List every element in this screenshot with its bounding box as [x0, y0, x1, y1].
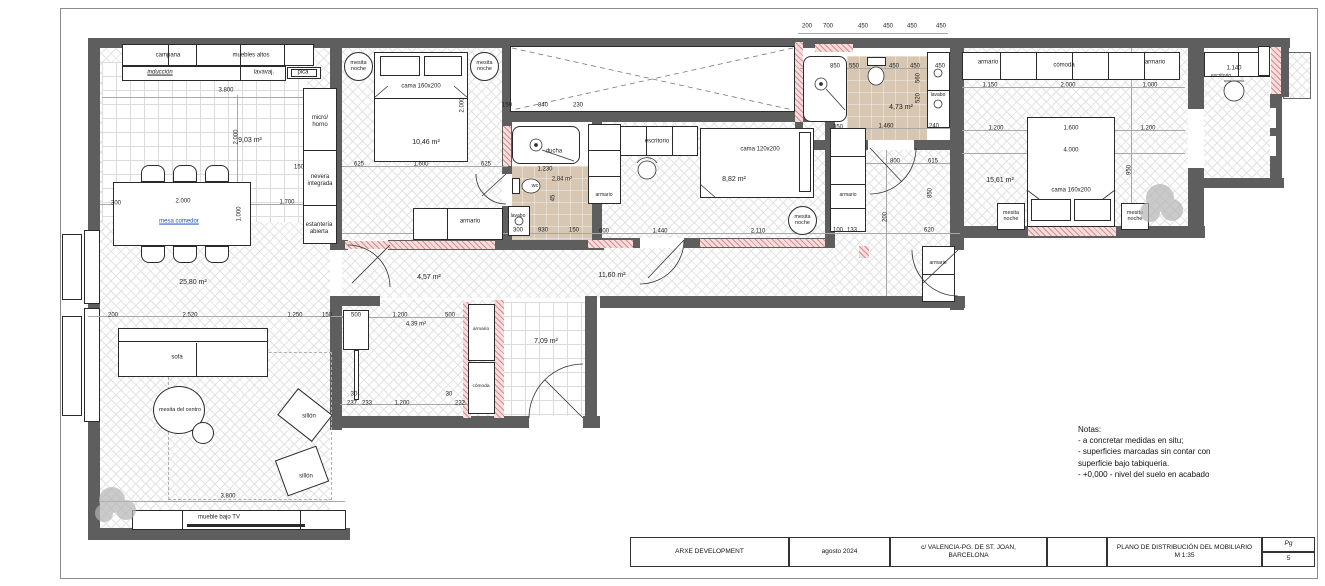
furniture-label: armario: [473, 327, 489, 333]
room-area-label: 11,60 m²: [598, 272, 625, 280]
titleblock-empty-cell: [1047, 537, 1107, 567]
dim-label: 1.200: [1140, 126, 1155, 133]
drawing-scale: M 1:35: [1175, 552, 1195, 560]
dim-label: 450: [936, 24, 946, 31]
titleblock-developer: ARXE DEVELOPMENT: [630, 537, 789, 567]
dim-label: 2.000: [460, 97, 467, 112]
dim-label: 150: [294, 165, 304, 172]
furniture-label: armario: [1145, 60, 1165, 67]
dim-label: 1.600: [413, 162, 428, 169]
room-area-label: 8,82 m²: [722, 176, 746, 184]
dim-label: 30: [351, 392, 358, 399]
titleblock-date: agosto 2024: [789, 537, 890, 567]
dim-label: 850: [928, 188, 935, 198]
dim-label: 1.000: [1142, 83, 1157, 90]
dim-label: 1.230: [537, 167, 552, 174]
dim-label: 45: [551, 195, 558, 202]
dim-label: 1.000: [237, 206, 244, 221]
dim-label: 3.800: [220, 494, 235, 501]
dim-label: 1.250: [287, 313, 302, 320]
dim-label: 100: [833, 228, 843, 235]
fixture-label: lavabo: [511, 214, 526, 220]
dim-label: 1.200: [394, 401, 409, 408]
dim-label: 1.150: [982, 83, 997, 90]
furniture-label: campana: [156, 53, 181, 60]
dim-label: 2.000: [175, 199, 190, 206]
titleblock-drawing-title: PLANO DE DISTRIBUCIÓN DEL MOBILIARIO M 1…: [1107, 537, 1262, 567]
notes-block: Notas: - a concretar medidas en situ; - …: [1078, 424, 1298, 480]
furniture-label: armario: [930, 261, 947, 267]
dim-label: 1.200: [392, 313, 407, 320]
dim-label: 1.460: [878, 124, 893, 131]
dim-label: 620: [924, 228, 934, 235]
dim-label: 133: [847, 228, 857, 235]
dim-label: 600: [599, 229, 609, 236]
furniture-label: mesita del centro: [159, 407, 201, 413]
floor-plan-sheet: mesita noche mesita noche mesita noche m…: [0, 0, 1325, 586]
furniture-label: mueble bajo TV: [198, 515, 240, 522]
furniture-label: armario: [978, 60, 998, 67]
dim-label: 200: [883, 212, 890, 222]
furniture-label: estantería abierta: [306, 222, 333, 236]
dim-label: 520: [916, 93, 923, 103]
room-area-label: 25,80 m²: [179, 279, 207, 287]
dim-label: 930: [538, 228, 548, 235]
room-area-label: 7,09 m²: [534, 338, 558, 346]
furniture-label: sillón: [299, 474, 313, 481]
furniture-label: inducción: [147, 70, 172, 77]
furniture-label: cómoda: [472, 384, 489, 390]
furniture-label: armario: [596, 193, 613, 199]
furniture-label: mesa comedor: [159, 219, 199, 226]
dim-label: 1.600: [1063, 126, 1078, 133]
dim-label: 233: [362, 401, 372, 408]
dim-label: 350: [833, 125, 843, 132]
room-area-label: 2,84 m²: [552, 177, 572, 184]
furniture-label: cama 160x200: [401, 84, 440, 91]
dim-label: 1.440: [652, 229, 667, 236]
furniture-label: micro/ horno: [312, 115, 328, 129]
furniture-label: cama 120x200: [740, 147, 779, 154]
dim-label: 450: [889, 64, 899, 71]
notes-line: - a concretar medidas en situ;: [1078, 435, 1298, 446]
dim-label: 150: [569, 228, 579, 235]
room-area-label: 4,57 m²: [417, 274, 441, 282]
dim-label: 300: [111, 201, 121, 208]
plant-icon: [95, 184, 1183, 522]
notes-line: superficie bajo tabiqueria.: [1078, 458, 1298, 469]
dim-label: 237: [347, 401, 357, 408]
dim-label: 200: [108, 313, 118, 320]
dim-label: 150: [502, 103, 512, 110]
dim-label: 1.140: [1226, 66, 1241, 73]
dim-label: 500: [445, 313, 455, 320]
titleblock-page-label: Pg: [1262, 537, 1315, 552]
furniture-label: sofa: [171, 355, 182, 362]
dim-label: 30: [446, 392, 453, 399]
dim-label: 450: [907, 24, 917, 31]
dim-label: 625: [354, 162, 364, 169]
furniture-label: nevera integrada: [307, 174, 332, 188]
dim-label: 850: [830, 64, 840, 71]
notes-line: - +0,000 - nivel del suelo en acabado: [1078, 469, 1298, 480]
furniture-label: armario: [460, 219, 480, 226]
dim-label: 700: [823, 24, 833, 31]
fixture-label: wc: [532, 183, 539, 189]
room-area-label: 4,73 m²: [889, 104, 913, 112]
titleblock-address: c/ VALENCIA-PG. DE ST. JOAN, BARCELONA: [890, 537, 1047, 567]
dim-label: 240: [929, 124, 939, 131]
dim-label: 625: [481, 162, 491, 169]
furniture-label: armario: [840, 193, 857, 199]
room-area-label: 9,03 m²: [238, 137, 262, 145]
furniture-label: escritorio: [1211, 74, 1231, 80]
room-area-label: 10,46 m²: [412, 139, 440, 147]
dim-label: 150: [322, 313, 332, 320]
dim-label: 800: [890, 159, 900, 166]
dim-label: 200: [802, 24, 812, 31]
dim-label: 2.520: [182, 313, 197, 320]
plan-annotations: [0, 0, 1325, 586]
room-area-label: 15,61 m²: [986, 177, 1014, 185]
dim-label: 450: [883, 24, 893, 31]
furniture-label: lavavaj.: [254, 70, 274, 77]
titleblock-page-number: 5: [1262, 552, 1315, 567]
dim-label: 450: [910, 64, 920, 71]
dim-label: 2.000: [1060, 83, 1075, 90]
room-area-label: 4,39 m²: [406, 322, 426, 329]
dim-label: 1.700: [279, 200, 294, 207]
dim-label: 615: [928, 159, 938, 166]
dim-label: 950: [1127, 165, 1134, 175]
dim-label: 560: [916, 73, 923, 83]
fixture-label: ducha: [546, 149, 562, 156]
furniture-label: sillón: [302, 414, 316, 421]
dim-label: 1.200: [988, 126, 1003, 133]
dim-label: 230: [573, 103, 583, 110]
dim-label: 2.000: [234, 129, 241, 144]
dim-label: 3.800: [218, 88, 233, 95]
dim-label: 450: [858, 24, 868, 31]
dim-label: 550: [849, 64, 859, 71]
dim-label: 450: [935, 64, 945, 71]
furniture-label: escritorio: [645, 139, 669, 146]
drawing-title: PLANO DE DISTRIBUCIÓN DEL MOBILIARIO: [1117, 544, 1252, 552]
furniture-label: pica: [297, 70, 308, 77]
notes-line: - superficies marcadas sin contar con: [1078, 446, 1298, 457]
notes-heading: Notas:: [1078, 424, 1298, 435]
furniture-label: cómoda: [1053, 63, 1074, 70]
furniture-label: cama 160x200: [1051, 188, 1090, 195]
dim-label: 300: [513, 228, 523, 235]
dim-label: 840: [538, 103, 548, 110]
furniture-label: muebles altos: [232, 53, 269, 60]
dim-label: 4.000: [1063, 148, 1078, 155]
dim-label: 500: [351, 313, 361, 320]
dim-label: 2.110: [751, 229, 766, 236]
dim-label: 232: [455, 401, 465, 408]
fixture-label: lavabo: [931, 93, 946, 99]
